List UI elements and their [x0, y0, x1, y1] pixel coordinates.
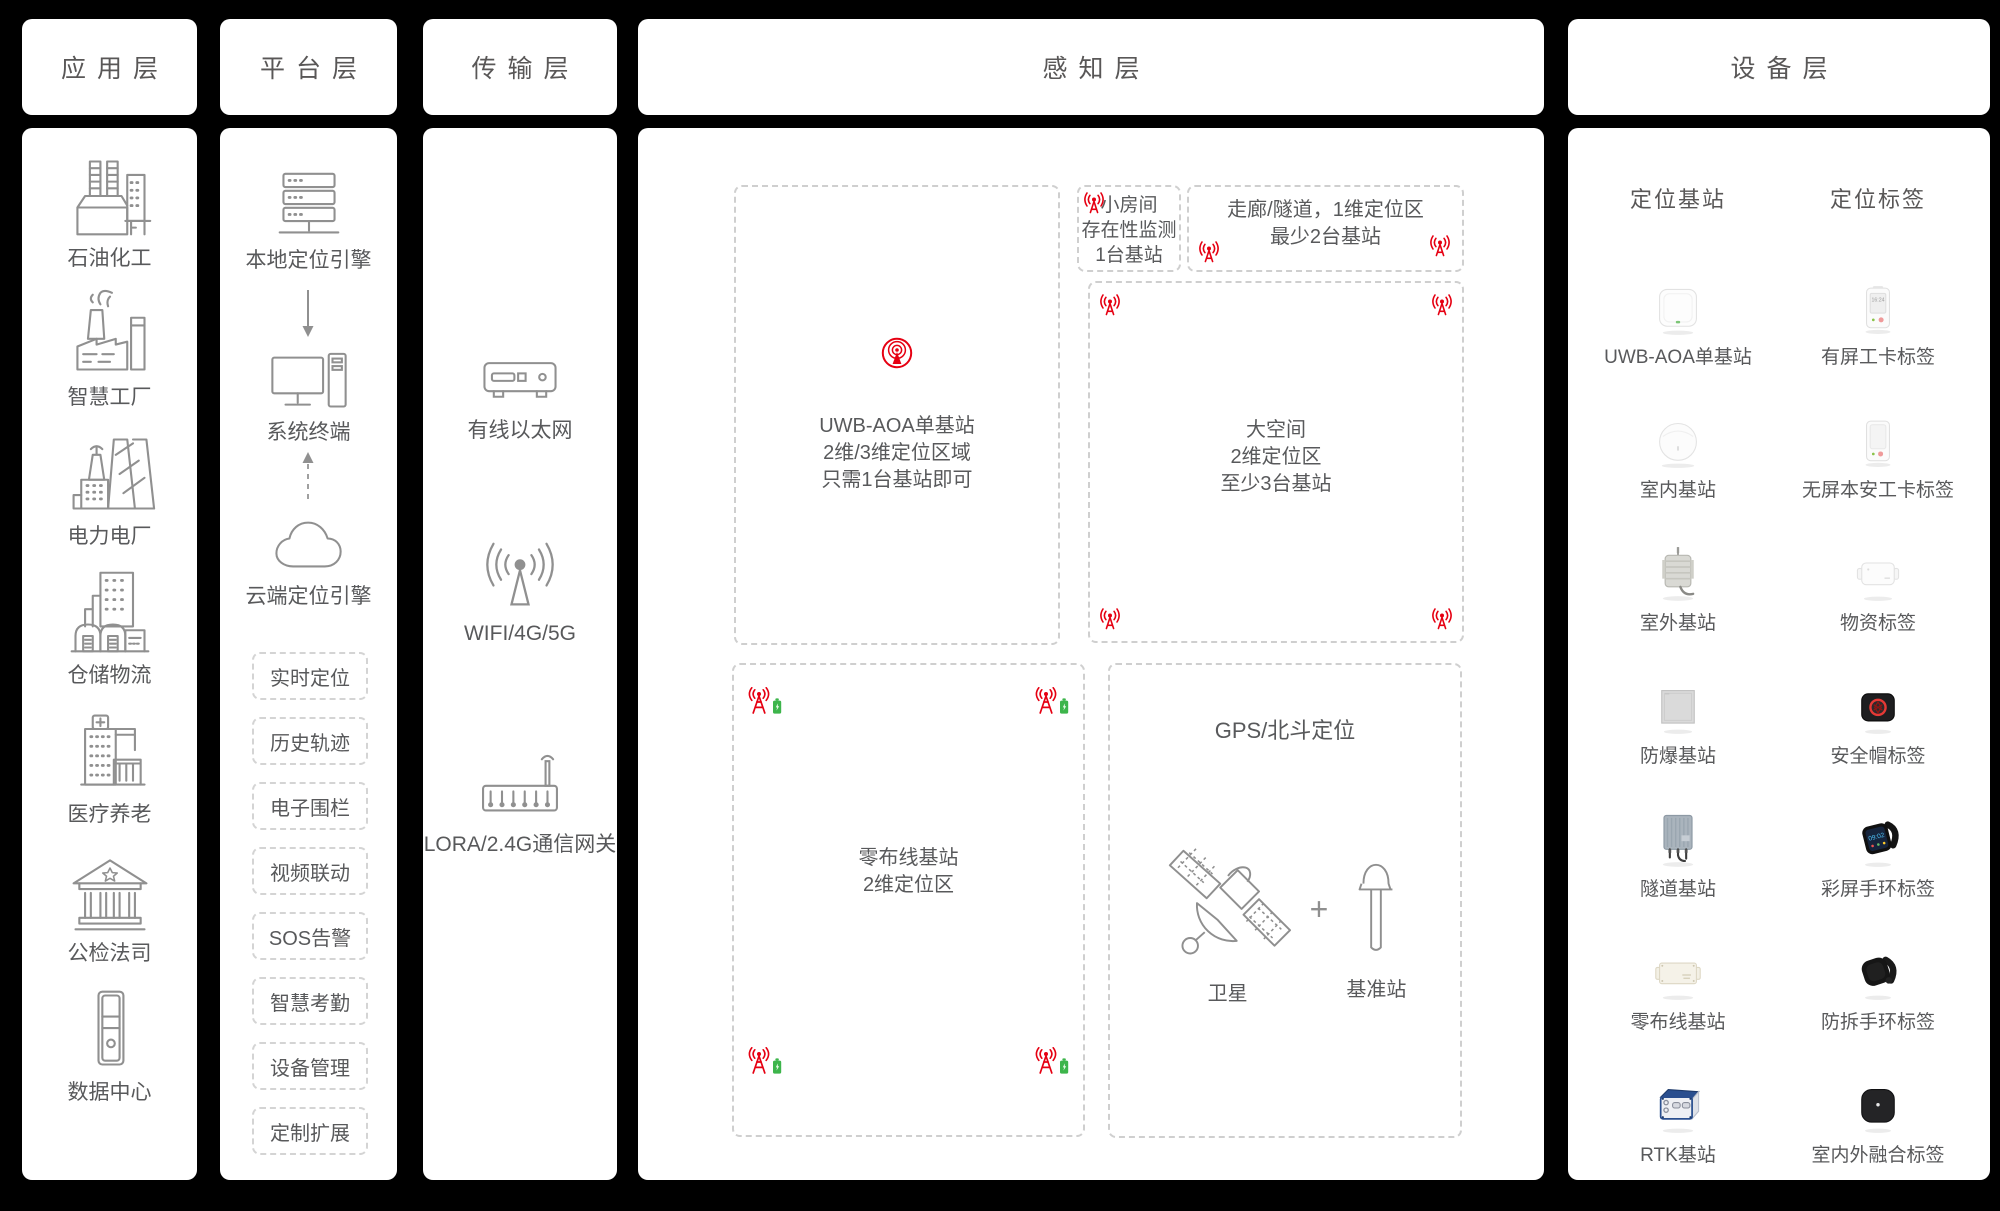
device-row: RTK基站 室内外融合标签	[1568, 1042, 1990, 1175]
device-row: 隧道基站 09:02 彩屏手环标签	[1568, 776, 1990, 909]
positioning-architecture-diagram: 应用层 平台层 传输层 感知层 设备层 石油化工	[0, 0, 2000, 1211]
device-rows: UWB-AOA单基站 16:24 有屏工卡标签	[1568, 244, 1990, 1175]
tag-column-header: 定位标签	[1773, 182, 1983, 214]
device-cell: 防拆手环标签	[1773, 909, 1983, 1042]
local-engine-label: 本地定位引擎	[220, 244, 397, 274]
perception-layer-title: 感知层	[1031, 49, 1150, 85]
anti-tamper-wristband-image	[1851, 949, 1905, 1001]
petrochemical-icon	[64, 150, 156, 242]
large-space-zone-text: 大空间 2维定位区 至少3台基站	[1090, 417, 1462, 498]
function-chip-attendance: 智慧考勤	[252, 977, 368, 1025]
function-chip-video: 视频联动	[252, 847, 368, 895]
anchor-tower-battery-icon	[1033, 687, 1071, 717]
platform-layer-panel: 本地定位引擎 系统终端 云端定位引擎 实时定位 历史轨迹 电子围栏 视频联动 S…	[220, 128, 397, 1180]
app-item-label: 医疗养老	[68, 798, 152, 828]
app-item-label: 石油化工	[68, 242, 152, 272]
base-station-icon	[1347, 843, 1405, 961]
corridor-zone: 走廊/隧道，1维定位区 最少2台基站	[1187, 185, 1464, 272]
zero-wiring-zone: 零布线基站 2维定位区	[732, 663, 1085, 1137]
arrow-up-dashed-icon	[300, 452, 316, 504]
anchor-signal-icon	[1098, 607, 1122, 631]
anchor-tower-battery-icon	[746, 1047, 784, 1077]
outdoor-station-image	[1650, 546, 1706, 602]
rtk-station-image	[1648, 1082, 1708, 1134]
app-item-petrochemical: 石油化工	[22, 150, 197, 289]
anchor-signal-icon	[1430, 293, 1454, 317]
device-cell: 零布线基站	[1578, 909, 1778, 1042]
device-row: 室内基站 无屏本安工卡标签	[1568, 377, 1990, 510]
function-chip-devices: 设备管理	[252, 1042, 368, 1090]
transmission-layer-panel: 有线以太网 WIFI/4G/5G LORA/2.4G通信网关	[423, 128, 617, 1180]
color-screen-wristband-image: 09:02	[1850, 816, 1906, 868]
device-layer-header: 设备层	[1568, 19, 1990, 115]
local-engine-server-icon	[272, 170, 346, 240]
perception-layer-panel: UWB-AOA单基站 2维/3维定位区域 只需1台基站即可 小房间 存在性监测 …	[638, 128, 1544, 1180]
smart-factory-icon	[64, 289, 156, 381]
function-chip-history: 历史轨迹	[252, 717, 368, 765]
anchor-signal-icon	[1428, 234, 1452, 258]
app-item-label: 电力电厂	[68, 520, 152, 550]
zero-wiring-station-image	[1648, 949, 1708, 1001]
perception-layer-header: 感知层	[638, 19, 1544, 115]
device-cell: 隧道基站	[1578, 776, 1778, 909]
function-chip-custom: 定制扩展	[252, 1107, 368, 1155]
medical-eldercare-icon	[64, 706, 156, 798]
anchor-tower-battery-icon	[746, 687, 784, 717]
anchor-tower-battery-icon	[1033, 1047, 1071, 1077]
device-cell: UWB-AOA单基站	[1578, 244, 1778, 377]
transmission-layer-title: 传输层	[460, 49, 579, 85]
app-item-label: 公检法司	[68, 937, 152, 967]
data-center-icon	[64, 984, 156, 1076]
large-space-zone: 大空间 2维定位区 至少3台基站	[1088, 281, 1464, 643]
ethernet-label: 有线以太网	[423, 414, 617, 444]
device-cell: 09:02 彩屏手环标签	[1773, 776, 1983, 909]
application-layer-header: 应用层	[22, 19, 197, 115]
app-item-data-center: 数据中心	[22, 984, 197, 1123]
satellite-icon	[1164, 843, 1292, 969]
device-cell: 物资标签	[1773, 510, 1983, 643]
app-item-medical: 医疗养老	[22, 706, 197, 845]
device-cell: RTK基站	[1578, 1042, 1778, 1175]
small-room-zone: 小房间 存在性监测 1台基站	[1077, 185, 1181, 272]
transmission-layer-header: 传输层	[423, 19, 617, 115]
device-cell: 无屏本安工卡标签	[1773, 377, 1983, 510]
ethernet-icon	[478, 350, 562, 408]
anchor-signal-icon	[1197, 240, 1221, 264]
lora-label: LORA/2.4G通信网关	[423, 828, 617, 858]
application-layer-panel: 石油化工 智慧工厂 电力电厂	[22, 128, 197, 1180]
gps-zone: GPS/北斗定位	[1108, 663, 1462, 1138]
anchor-signal-icon	[1430, 607, 1454, 631]
device-layer-title: 设备层	[1719, 49, 1838, 85]
helmet-tag-image	[1851, 683, 1905, 735]
cloud-engine-icon	[272, 518, 346, 572]
no-screen-badge-tag-image	[1853, 417, 1903, 469]
satellite-label: 卫星	[1208, 981, 1248, 1008]
uwb-zone: UWB-AOA单基站 2维/3维定位区域 只需1台基站即可	[734, 185, 1060, 645]
small-room-zone-text: 小房间 存在性监测 1台基站	[1079, 193, 1179, 268]
lora-gateway-icon	[475, 746, 565, 818]
station-column-header: 定位基站	[1578, 182, 1778, 214]
screen-badge-tag-image: 16:24	[1853, 284, 1903, 336]
uwb-zone-text: UWB-AOA单基站 2维/3维定位区域 只需1台基站即可	[736, 413, 1058, 494]
device-cell: 安全帽标签	[1773, 643, 1983, 776]
function-chip-realtime: 实时定位	[252, 652, 368, 700]
asset-tag-image	[1850, 550, 1906, 602]
app-item-label: 智慧工厂	[68, 381, 152, 411]
device-row: UWB-AOA单基站 16:24 有屏工卡标签	[1568, 244, 1990, 377]
arrow-down-icon	[300, 290, 316, 338]
app-item-label: 数据中心	[68, 1076, 152, 1106]
device-cell: 16:24 有屏工卡标签	[1773, 244, 1983, 377]
wifi-label: WIFI/4G/5G	[423, 622, 617, 646]
zero-wiring-zone-text: 零布线基站 2维定位区	[734, 845, 1083, 899]
system-terminal-label: 系统终端	[220, 416, 397, 446]
device-cell: 防爆基站	[1578, 643, 1778, 776]
indoor-station-image	[1650, 417, 1706, 469]
application-layer-title: 应用层	[50, 49, 169, 85]
platform-layer-header: 平台层	[220, 19, 397, 115]
function-chip-sos: SOS告警	[252, 912, 368, 960]
function-chip-geofence: 电子围栏	[252, 782, 368, 830]
device-cell: 室内外融合标签	[1773, 1042, 1983, 1175]
corridor-zone-text: 走廊/隧道，1维定位区 最少2台基站	[1189, 197, 1462, 251]
power-plant-icon	[64, 428, 156, 520]
device-cell: 室外基站	[1578, 510, 1778, 643]
indoor-outdoor-fusion-tag-image	[1851, 1082, 1905, 1134]
wireless-antenna-icon	[477, 540, 563, 612]
uwb-aoa-station-image	[1650, 284, 1706, 336]
platform-layer-title: 平台层	[249, 49, 368, 85]
justice-icon	[64, 845, 156, 937]
app-item-smart-factory: 智慧工厂	[22, 289, 197, 428]
app-item-power-plant: 电力电厂	[22, 428, 197, 567]
uwb-anchor-icon	[736, 337, 1058, 371]
gps-zone-title: GPS/北斗定位	[1110, 713, 1460, 745]
base-station-label: 基准站	[1346, 977, 1406, 1004]
device-cell: 室内基站	[1578, 377, 1778, 510]
app-item-label: 仓储物流	[68, 659, 152, 689]
explosion-proof-station-image	[1650, 683, 1706, 735]
cloud-engine-label: 云端定位引擎	[220, 580, 397, 610]
tunnel-station-image	[1650, 812, 1706, 868]
svg-text:16:24: 16:24	[1872, 298, 1885, 304]
app-item-warehouse: 仓储物流	[22, 567, 197, 706]
device-row: 零布线基站 防拆手环标签	[1568, 909, 1990, 1042]
device-row: 防爆基站 安全帽标签	[1568, 643, 1990, 776]
plus-sign: +	[1310, 891, 1329, 928]
system-terminal-icon	[270, 352, 348, 414]
device-row: 室外基站 物资标签	[1568, 510, 1990, 643]
anchor-signal-icon	[1098, 293, 1122, 317]
warehouse-logistics-icon	[64, 567, 156, 659]
device-layer-panel: 定位基站 定位标签 UWB-AOA单基站	[1568, 128, 1990, 1180]
app-item-justice: 公检法司	[22, 845, 197, 984]
